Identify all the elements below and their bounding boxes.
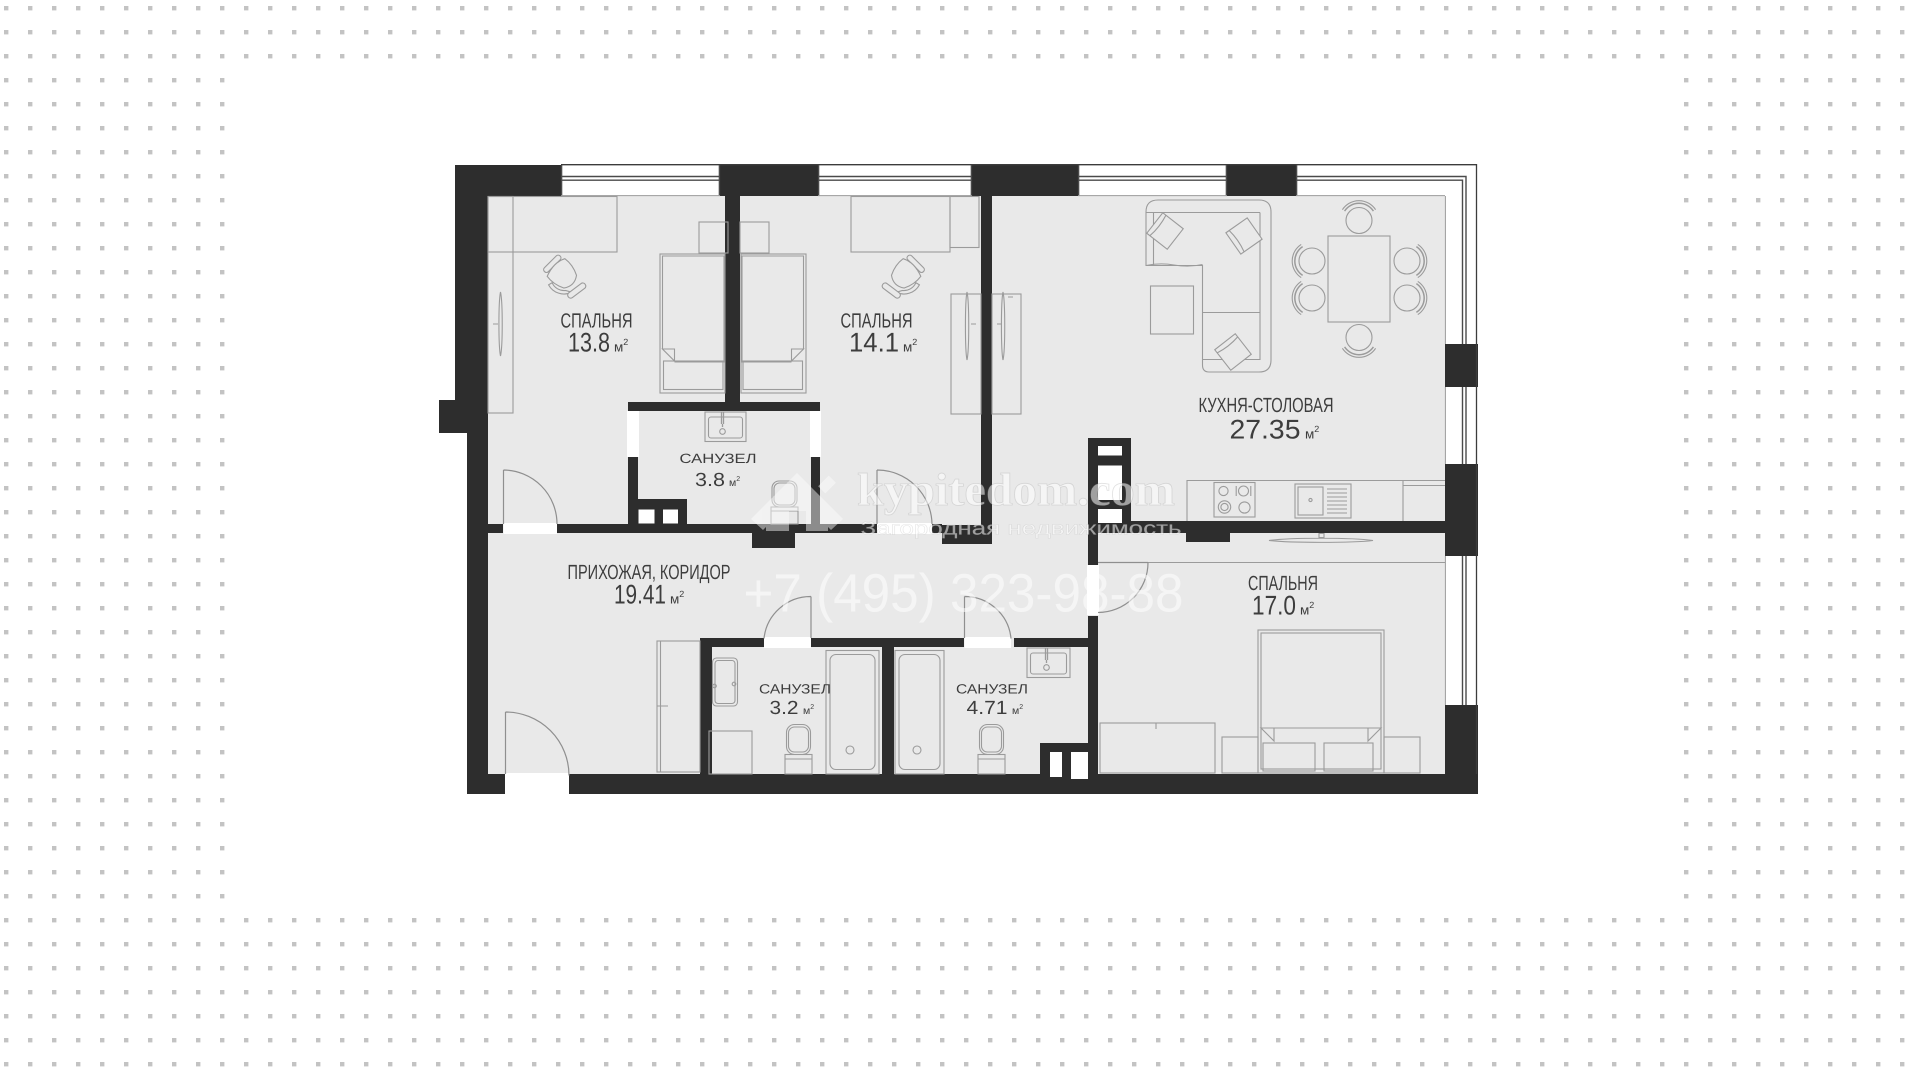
svg-text:+7 (495) 323-98-88: +7 (495) 323-98-88	[744, 564, 1184, 624]
svg-text:kypitedom.com: kypitedom.com	[857, 464, 1175, 515]
svg-text:13.8: 13.8	[568, 328, 610, 358]
svg-text:САНУЗЕЛ: САНУЗЕЛ	[680, 451, 757, 466]
svg-text:4.71: 4.71	[967, 698, 1008, 719]
svg-text:САНУЗЕЛ: САНУЗЕЛ	[759, 682, 831, 697]
svg-text:3.2: 3.2	[770, 698, 799, 719]
svg-text:3.8: 3.8	[695, 470, 725, 491]
svg-text:САНУЗЕЛ: САНУЗЕЛ	[956, 682, 1028, 697]
svg-text:17.0: 17.0	[1252, 591, 1296, 621]
svg-text:14.1: 14.1	[849, 328, 899, 358]
svg-text:27.35: 27.35	[1230, 415, 1301, 445]
svg-text:19.41: 19.41	[614, 580, 666, 610]
svg-text:Загородная недвижимость: Загородная недвижимость	[861, 519, 1182, 540]
